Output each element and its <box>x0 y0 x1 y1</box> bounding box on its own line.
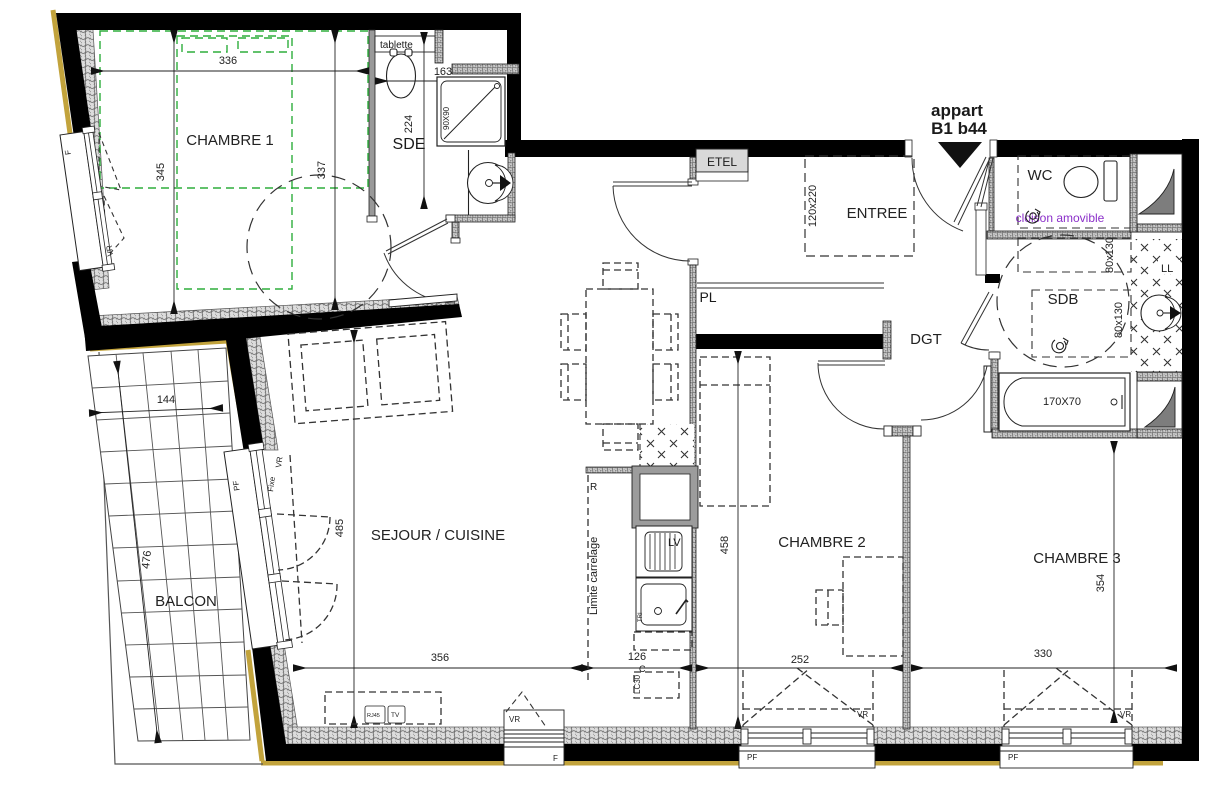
svg-text:DGT: DGT <box>910 331 942 348</box>
svg-text:BALCON: BALCON <box>155 593 217 610</box>
svg-text:VR: VR <box>509 715 520 724</box>
svg-text:126: 126 <box>628 651 646 663</box>
svg-text:163: 163 <box>434 66 452 78</box>
svg-text:LV: LV <box>668 537 681 549</box>
svg-text:144: 144 <box>157 394 175 406</box>
svg-text:CHAMBRE 1: CHAMBRE 1 <box>186 132 274 149</box>
svg-text:ETEL: ETEL <box>707 155 737 169</box>
svg-text:252: 252 <box>791 654 809 666</box>
svg-text:cloison amovible: cloison amovible <box>1016 211 1105 225</box>
svg-text:VR: VR <box>105 245 115 257</box>
svg-text:TV: TV <box>391 712 400 719</box>
svg-text:80x130: 80x130 <box>1113 302 1125 338</box>
svg-text:F: F <box>553 754 558 763</box>
svg-text:224: 224 <box>403 115 415 133</box>
svg-text:C: C <box>639 664 646 674</box>
svg-text:VR: VR <box>274 456 284 468</box>
svg-text:B1 b44: B1 b44 <box>931 119 987 138</box>
svg-text:458: 458 <box>719 536 731 554</box>
svg-text:120x220: 120x220 <box>807 185 819 227</box>
svg-text:appart: appart <box>931 101 983 120</box>
svg-text:LL: LL <box>1161 263 1173 275</box>
svg-text:170X70: 170X70 <box>1043 396 1081 408</box>
svg-text:PF: PF <box>1008 753 1018 762</box>
svg-text:356: 356 <box>431 652 449 664</box>
svg-text:330: 330 <box>1034 648 1052 660</box>
svg-text:345: 345 <box>155 163 167 181</box>
svg-text:CHAMBRE 2: CHAMBRE 2 <box>778 534 866 551</box>
svg-text:337: 337 <box>316 161 328 179</box>
svg-text:SEJOUR / CUISINE: SEJOUR / CUISINE <box>371 527 505 544</box>
svg-text:80x130: 80x130 <box>1104 237 1116 273</box>
svg-text:354: 354 <box>1095 574 1107 592</box>
svg-text:PF: PF <box>747 753 757 762</box>
svg-text:SDB: SDB <box>1048 291 1079 308</box>
svg-text:90X90: 90X90 <box>442 106 451 130</box>
svg-text:TRI: TRI <box>638 612 644 622</box>
svg-text:RJ45: RJ45 <box>367 713 380 719</box>
svg-text:R: R <box>590 482 597 493</box>
svg-text:WC: WC <box>1028 167 1053 184</box>
svg-text:PF: PF <box>231 480 241 492</box>
svg-text:336: 336 <box>219 55 237 67</box>
svg-text:PL: PL <box>699 289 716 305</box>
svg-text:CHAMBRE 3: CHAMBRE 3 <box>1033 550 1121 567</box>
svg-text:ENTREE: ENTREE <box>847 205 908 222</box>
svg-text:SDE: SDE <box>393 136 426 153</box>
svg-text:LC30: LC30 <box>633 674 642 694</box>
svg-text:485: 485 <box>334 519 346 537</box>
svg-text:Limite carrelage: Limite carrelage <box>588 537 600 615</box>
svg-text:476: 476 <box>140 550 154 570</box>
